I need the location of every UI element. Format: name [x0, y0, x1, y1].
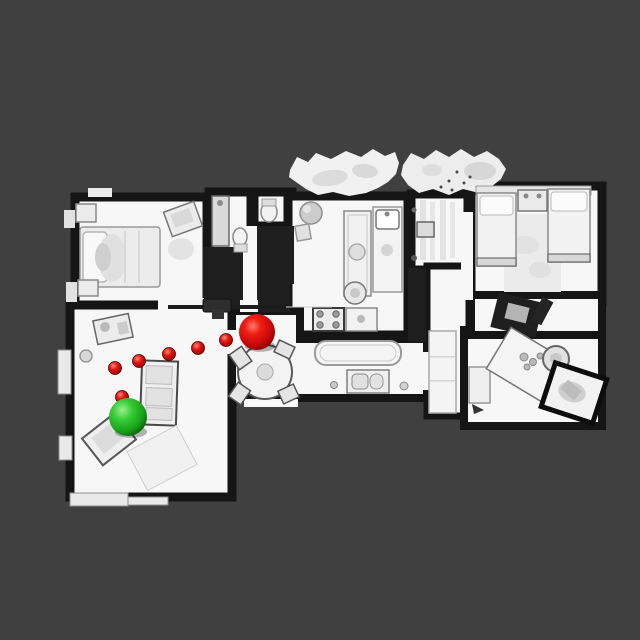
furniture-hall-cabinet [429, 331, 456, 413]
furniture-cloth [168, 238, 194, 260]
waypoint-dot [109, 362, 122, 375]
porch-step [88, 188, 112, 197]
porch-step [59, 436, 72, 460]
desk-item [530, 359, 537, 366]
furniture-burner [333, 311, 339, 317]
scene-viewport[interactable] [0, 0, 640, 640]
scan-blob-shade [422, 164, 442, 176]
start-marker [109, 398, 147, 436]
furniture-nightstand [78, 280, 98, 296]
furniture-round-sink [300, 202, 322, 224]
nightstand-knob [524, 194, 529, 199]
furniture-knob [331, 382, 338, 389]
porch-step [128, 497, 168, 505]
closet-floor-streak [450, 202, 455, 258]
ceiling-fan-motor [212, 309, 224, 319]
furniture-blanket-rib [124, 231, 126, 283]
waypoint-dot [220, 334, 233, 347]
scan-speckle [448, 180, 451, 183]
desk-item [520, 353, 528, 361]
furniture-burner [333, 322, 339, 328]
floorplan-svg [0, 0, 640, 640]
furniture-counter-item [381, 244, 393, 256]
furniture-hall-cabinet-line [430, 356, 455, 358]
scan-speckle [456, 171, 459, 174]
closet-dot [412, 208, 417, 213]
furniture-toilet [233, 228, 247, 246]
goal-marker [239, 314, 275, 350]
furniture-nightstand [76, 204, 96, 222]
furniture-cabinet-knob [357, 315, 365, 323]
furniture-toilet-tank [234, 244, 247, 252]
furniture-round-sink-highlight [303, 205, 311, 213]
closet-floor-streak [440, 200, 446, 260]
furniture-side-table [80, 350, 92, 362]
waypoint-dot [192, 342, 205, 355]
waypoint-dot [163, 348, 176, 361]
furniture-box [417, 222, 434, 237]
porch-step [66, 282, 77, 302]
furniture-sofa-cushion [146, 388, 173, 407]
furniture-pillow [551, 192, 587, 211]
porch-step [58, 350, 71, 394]
wall-mass [254, 226, 294, 284]
furniture-faucet [385, 212, 390, 217]
furniture-pillow [480, 196, 513, 215]
furniture-duvet-fold [95, 243, 111, 271]
wall-mass [408, 268, 426, 342]
scan-speckle [451, 189, 454, 192]
furniture-nightstand [518, 190, 547, 211]
furniture-footboard [477, 258, 516, 266]
furniture-burner [317, 311, 323, 317]
porch-step [64, 210, 75, 228]
nightstand-knob [537, 194, 542, 199]
furniture-cabinet [469, 367, 490, 403]
desk-item [524, 364, 530, 370]
furniture-tv-detail [100, 322, 110, 332]
furniture-knob [400, 382, 408, 390]
corridor-right [461, 212, 473, 300]
furniture-vanity-sink [352, 374, 368, 389]
furniture-sofa-cushion [146, 408, 172, 421]
waypoint-dot [133, 355, 146, 368]
furniture-blanket-rib [138, 231, 140, 283]
furniture-island-bowl [349, 244, 365, 260]
furniture-vanity-sink [370, 374, 383, 389]
furniture-dining-table-center [257, 364, 273, 380]
furniture-footboard [548, 254, 590, 262]
scan-speckle [440, 186, 443, 189]
furniture-shower-head [217, 200, 223, 206]
rug-texture [529, 262, 551, 278]
furniture-toilet-tank [262, 199, 276, 206]
closet-dot [411, 255, 417, 261]
scan-speckle [463, 182, 466, 185]
furniture-hall-cabinet-line [430, 380, 455, 382]
wall-mass [203, 247, 247, 285]
furniture-burner [317, 322, 323, 328]
furniture-stool-seat [350, 288, 360, 298]
porch-step [70, 493, 128, 506]
doorway-bedroom-left [158, 298, 204, 311]
scan-speckle [469, 176, 472, 179]
furniture-box [295, 224, 311, 241]
furniture-sofa-cushion [146, 366, 173, 385]
